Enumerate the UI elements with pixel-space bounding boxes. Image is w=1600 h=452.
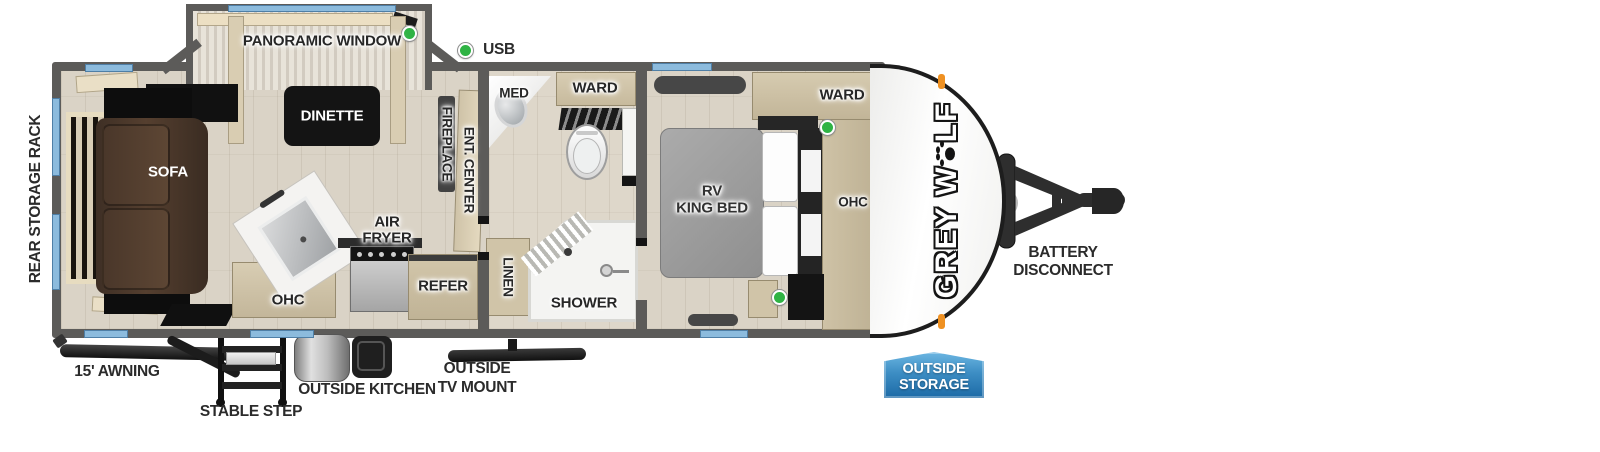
- case-inner: [357, 341, 385, 371]
- kitchen-ohc-label: OHC: [272, 292, 305, 309]
- bedding-box: [801, 150, 821, 192]
- usb-indicator-icon: [772, 290, 787, 305]
- sink-basin: [257, 196, 340, 281]
- bed-foot-cabinet: [788, 274, 824, 320]
- bedding-box: [801, 214, 821, 256]
- outside-kitchen-label: OUTSIDE KITCHEN: [298, 381, 436, 399]
- usb-legend-icon: [458, 43, 473, 58]
- entry-door-mat: [160, 304, 238, 326]
- window-rear-wall-lower: [52, 214, 60, 290]
- tv-mount-nub: [508, 339, 517, 351]
- window-bedroom-top: [652, 63, 712, 71]
- window-valance: [654, 76, 746, 94]
- stable-step-label: STABLE STEP: [200, 403, 302, 421]
- headboard-shelf: [798, 128, 824, 278]
- bedroom-ohc-label: OHC: [838, 195, 867, 210]
- bath-ward-label: WARD: [572, 80, 617, 97]
- dinette-label: DINETTE: [301, 108, 364, 125]
- marker-light-top: [938, 74, 945, 89]
- toilet-lid-line: [576, 131, 598, 135]
- bath-wall-left-upper: [478, 70, 489, 216]
- brand-text-suffix: LF: [930, 102, 964, 143]
- slideout-window: [228, 5, 396, 12]
- window-top-rear: [85, 64, 133, 72]
- outside-storage-label-line2: STORAGE: [899, 377, 969, 393]
- rv-floorplan: GREY WLF OUTSIDE STORAGE USB PANOR: [0, 0, 1600, 452]
- air-fryer-label-line1: AIR: [374, 214, 399, 231]
- bath-wall-right-upper: [636, 70, 647, 238]
- step-tread: [222, 382, 282, 389]
- bed-pillows: [762, 130, 798, 276]
- wardrobe-shelf-dark: [758, 116, 818, 130]
- bath-wall-left-lower: [478, 260, 489, 330]
- shower-head-arm: [613, 270, 629, 273]
- refer-top-edge: [409, 255, 477, 261]
- entry-door: [250, 330, 314, 338]
- brand-text-prefix: GREY W: [930, 165, 964, 298]
- shower-head-icon: [600, 264, 613, 277]
- toilet-seat: [573, 138, 601, 174]
- bath-door-jamb: [478, 216, 489, 224]
- tv-mount-label-line1: OUTSIDE: [444, 360, 511, 378]
- window-bedroom-bottom: [700, 330, 748, 338]
- step-drawer: [226, 352, 276, 365]
- usb-indicator-icon: [402, 26, 417, 41]
- sofa: [96, 118, 208, 294]
- air-fryer-label-line2: FRYER: [362, 230, 411, 247]
- shower-label: SHOWER: [551, 295, 617, 312]
- sink-drain: [299, 235, 307, 243]
- brand-logo: GREY WLF: [930, 102, 964, 299]
- pillow: [762, 132, 798, 202]
- dinette-bench-left: [228, 16, 244, 144]
- battery-disconnect-label-line2: DISCONNECT: [1013, 262, 1112, 280]
- toilet: [566, 124, 608, 180]
- battery-disconnect-label-line1: BATTERY: [1028, 244, 1097, 262]
- window-sill: [197, 13, 393, 26]
- panoramic-window-label: PANORAMIC WINDOW: [243, 33, 401, 50]
- sofa-label: SOFA: [148, 164, 188, 181]
- marker-light-bottom: [938, 314, 945, 329]
- tongue-hitch: [992, 146, 1142, 258]
- cooktop-knobs: [351, 247, 413, 261]
- outside-storage-label-line1: OUTSIDE: [902, 361, 965, 377]
- shower-drain: [564, 248, 572, 256]
- bed-label-line1: RV: [702, 183, 722, 200]
- jack-post: [1052, 188, 1061, 214]
- fireplace-label: FIREPLACE: [440, 107, 455, 182]
- refer-label: REFER: [418, 278, 468, 295]
- ent-center-label: ENT. CENTER: [462, 127, 477, 213]
- usb-legend-label: USB: [483, 41, 515, 59]
- outside-kitchen-case: [352, 336, 392, 378]
- tv-mount-label-line2: TV MOUNT: [438, 379, 517, 397]
- coupler: [1092, 188, 1124, 214]
- bedroom-door-jamb: [636, 238, 647, 246]
- bath-wall-right-lower: [636, 300, 647, 330]
- linen-label: LINEN: [501, 257, 516, 297]
- bed-label-line2: KING BED: [676, 200, 748, 217]
- usb-indicator-icon: [820, 120, 835, 135]
- pillow: [762, 206, 798, 276]
- paw-print-icon: [945, 147, 955, 160]
- range-air-fryer: [350, 246, 414, 312]
- window-bottom-rear: [84, 330, 128, 338]
- step-tread: [222, 364, 282, 371]
- stable-step-unit: [172, 330, 292, 408]
- window-rear-wall-upper: [52, 98, 60, 176]
- window-shade-bottom: [688, 314, 738, 326]
- rear-storage-rack-label: REAR STORAGE RACK: [27, 115, 45, 284]
- sofa-cushion: [102, 208, 170, 290]
- end-table-top: [104, 88, 192, 118]
- med-label: MED: [499, 86, 528, 101]
- awning-label: 15' AWNING: [74, 363, 159, 381]
- bath-door-jamb: [478, 252, 489, 260]
- a-frame: [1015, 166, 1084, 236]
- outside-grill: [294, 334, 350, 382]
- bedroom-ward-label: WARD: [819, 87, 864, 104]
